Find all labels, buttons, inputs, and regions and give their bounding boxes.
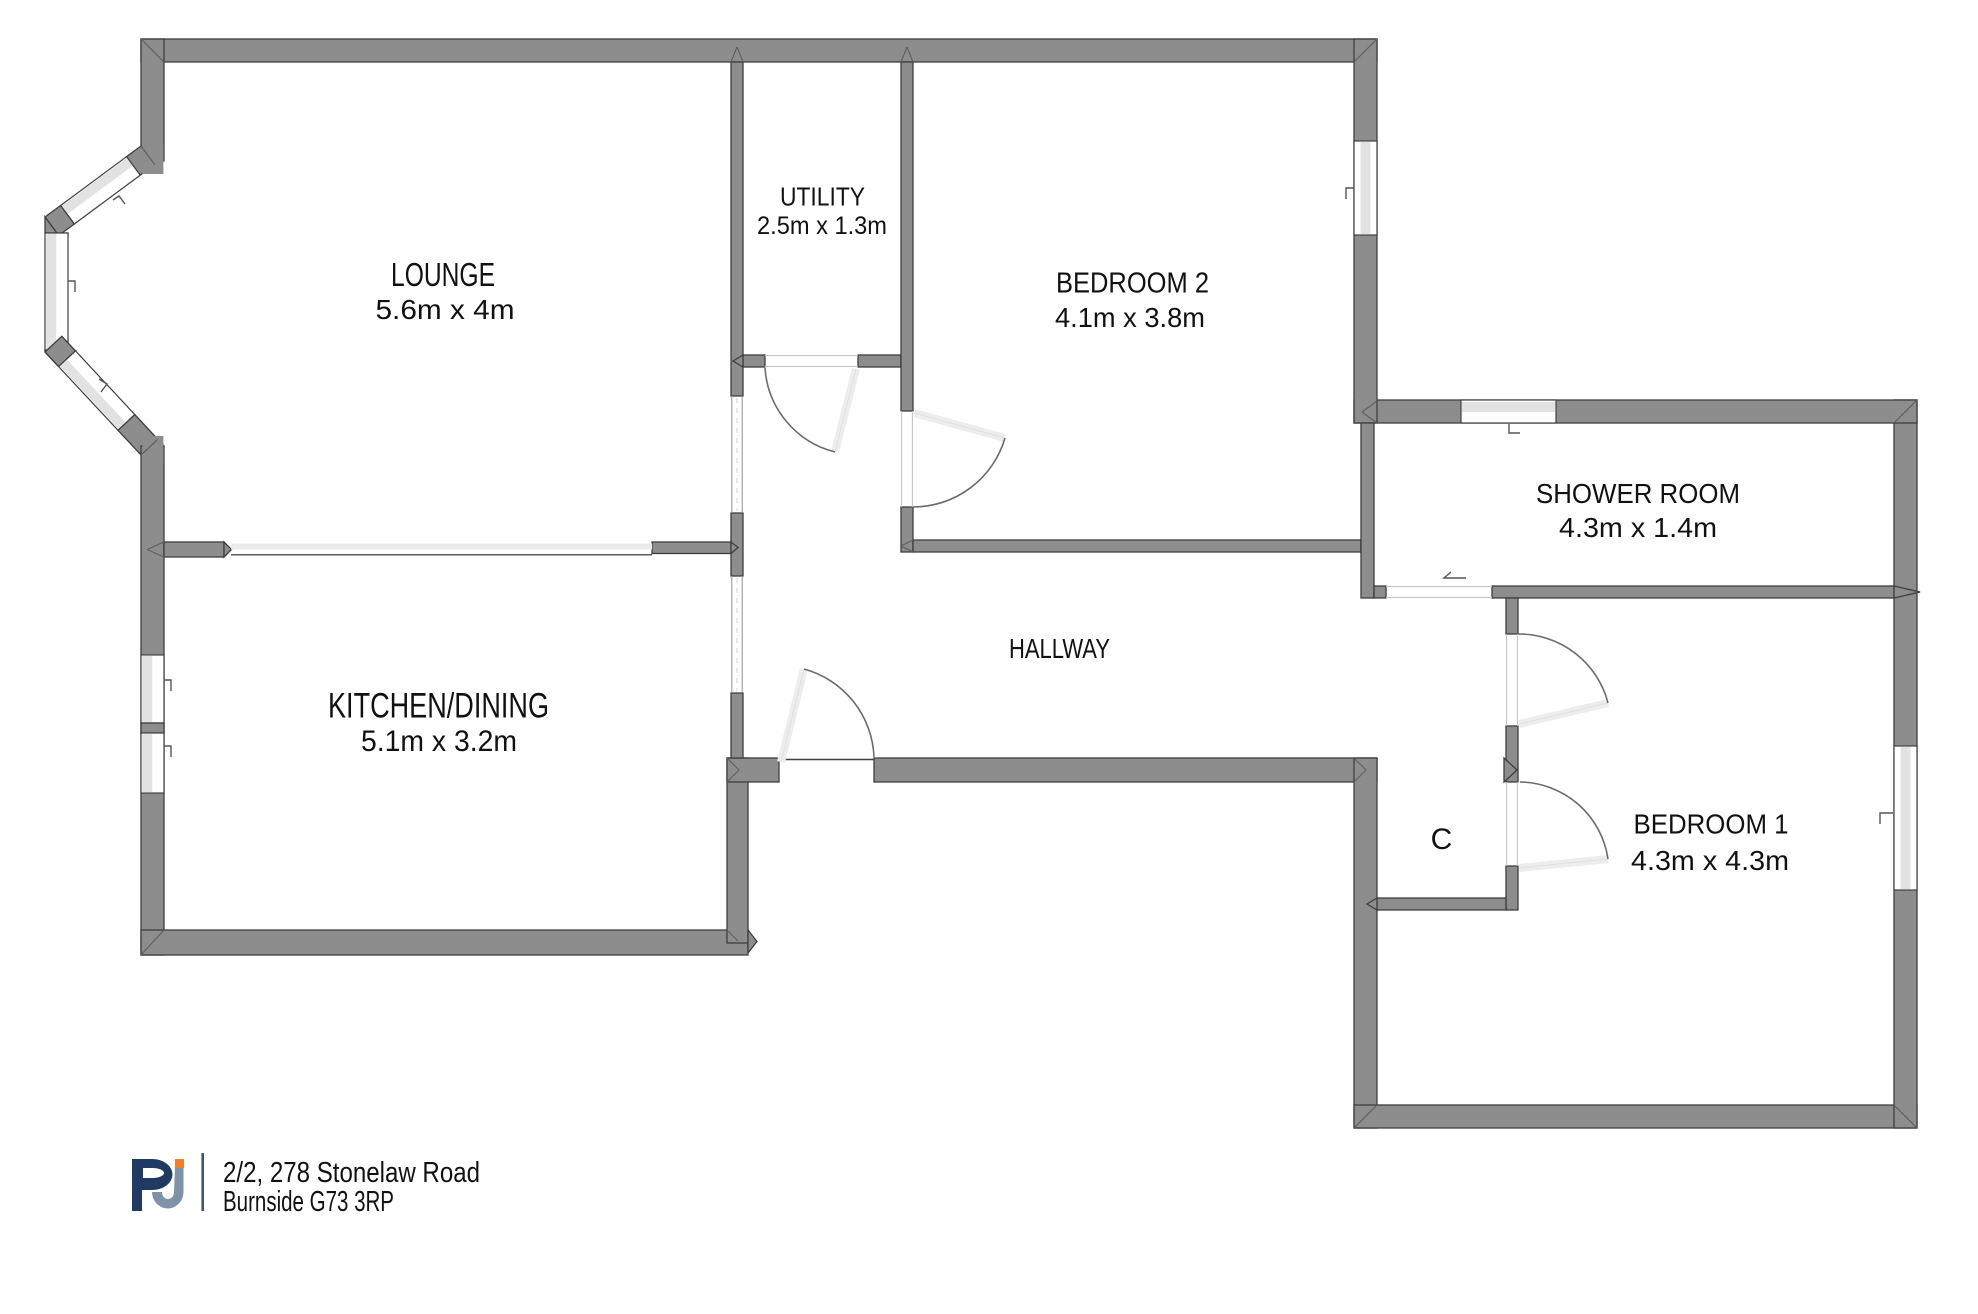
svg-text:4.3m x 1.4m: 4.3m x 1.4m bbox=[1559, 512, 1717, 543]
svg-text:LOUNGE: LOUNGE bbox=[391, 257, 495, 294]
svg-text:SHOWER ROOM: SHOWER ROOM bbox=[1536, 478, 1740, 509]
svg-text:2.5m x 1.3m: 2.5m x 1.3m bbox=[757, 212, 887, 240]
svg-text:HALLWAY: HALLWAY bbox=[1009, 633, 1110, 664]
svg-text:Burnside G73 3RP: Burnside G73 3RP bbox=[223, 1186, 394, 1218]
svg-text:BEDROOM 1: BEDROOM 1 bbox=[1634, 809, 1789, 840]
svg-text:KITCHEN/DINING: KITCHEN/DINING bbox=[328, 687, 549, 726]
svg-text:C: C bbox=[1431, 823, 1453, 856]
svg-text:5.1m x 3.2m: 5.1m x 3.2m bbox=[361, 725, 517, 758]
svg-text:BEDROOM 2: BEDROOM 2 bbox=[1056, 268, 1209, 300]
svg-text:5.6m x 4m: 5.6m x 4m bbox=[376, 294, 515, 325]
svg-text:4.1m x 3.8m: 4.1m x 3.8m bbox=[1055, 302, 1205, 333]
svg-text:UTILITY: UTILITY bbox=[780, 184, 865, 212]
svg-text:4.3m x 4.3m: 4.3m x 4.3m bbox=[1631, 845, 1789, 876]
svg-text:2/2, 278 Stonelaw Road: 2/2, 278 Stonelaw Road bbox=[223, 1157, 480, 1189]
